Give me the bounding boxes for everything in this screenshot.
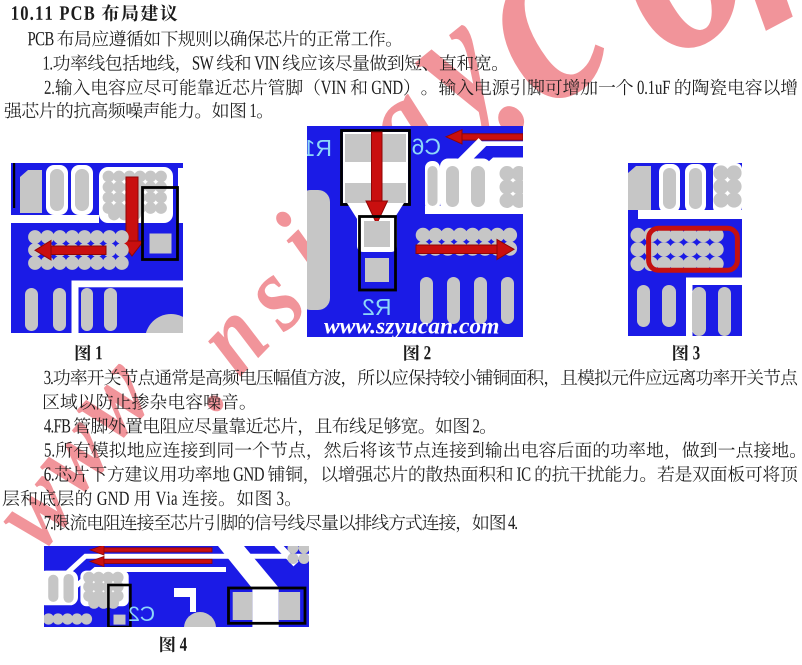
svg-text:R1: R1 [303,135,332,161]
svg-text:C6: C6 [412,134,441,160]
svg-text:www.szyucan.com: www.szyucan.com [324,314,499,340]
svg-text:C2: C2 [128,603,155,626]
